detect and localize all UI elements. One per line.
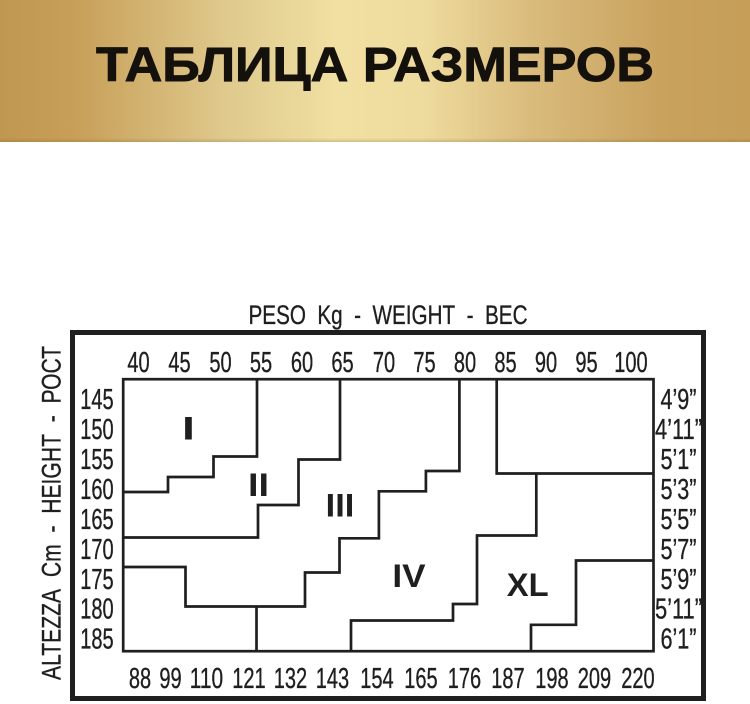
svg-text:II: II: [248, 467, 269, 503]
svg-text:ALTEZZA Cm - HEIGHT - РОС: ALTEZZA Cm - HEIGHT - РОСТ: [37, 346, 67, 680]
svg-text:85: 85: [494, 347, 516, 379]
svg-text:121: 121: [232, 663, 265, 695]
svg-text:95: 95: [575, 347, 597, 379]
svg-text:110: 110: [190, 663, 223, 695]
svg-text:PESO Kg - WEIGHT - ВЕС: PESO Kg - WEIGHT - ВЕС: [249, 300, 528, 330]
svg-text:170: 170: [80, 534, 113, 566]
svg-text:5’9”: 5’9”: [661, 564, 697, 596]
svg-text:80: 80: [454, 347, 476, 379]
svg-text:145: 145: [80, 384, 113, 416]
svg-text:70: 70: [373, 347, 395, 379]
svg-text:132: 132: [274, 663, 307, 695]
svg-text:220: 220: [621, 663, 654, 695]
svg-text:187: 187: [491, 663, 524, 695]
svg-text:155: 155: [80, 444, 113, 476]
svg-text:50: 50: [209, 347, 231, 379]
svg-text:160: 160: [80, 474, 113, 506]
svg-text:5’3”: 5’3”: [661, 474, 697, 506]
svg-text:150: 150: [80, 414, 113, 446]
svg-text:5’1”: 5’1”: [661, 444, 697, 476]
svg-text:XL: XL: [507, 567, 549, 603]
svg-text:6’1”: 6’1”: [661, 624, 697, 656]
svg-text:45: 45: [168, 347, 190, 379]
svg-text:88: 88: [129, 663, 151, 695]
svg-text:I: I: [182, 410, 195, 446]
svg-text:209: 209: [578, 663, 611, 695]
svg-text:165: 165: [80, 504, 113, 536]
svg-text:65: 65: [331, 347, 353, 379]
svg-text:99: 99: [159, 663, 181, 695]
svg-text:175: 175: [80, 564, 113, 596]
svg-text:40: 40: [127, 347, 149, 379]
svg-text:165: 165: [404, 663, 437, 695]
svg-text:198: 198: [535, 663, 568, 695]
svg-text:176: 176: [448, 663, 481, 695]
svg-text:III: III: [326, 487, 355, 523]
svg-text:5’5”: 5’5”: [661, 504, 697, 536]
svg-text:5’11”: 5’11”: [655, 594, 702, 626]
svg-text:60: 60: [291, 347, 313, 379]
svg-text:154: 154: [360, 663, 393, 695]
svg-text:IV: IV: [392, 558, 426, 594]
svg-text:100: 100: [614, 347, 647, 379]
svg-text:75: 75: [413, 347, 435, 379]
svg-text:143: 143: [316, 663, 349, 695]
svg-text:4’9”: 4’9”: [661, 384, 697, 416]
svg-text:185: 185: [80, 624, 113, 656]
svg-text:55: 55: [250, 347, 272, 379]
svg-text:180: 180: [80, 594, 113, 626]
svg-text:5’7”: 5’7”: [661, 534, 697, 566]
svg-text:90: 90: [535, 347, 557, 379]
svg-text:4’11”: 4’11”: [655, 414, 702, 446]
